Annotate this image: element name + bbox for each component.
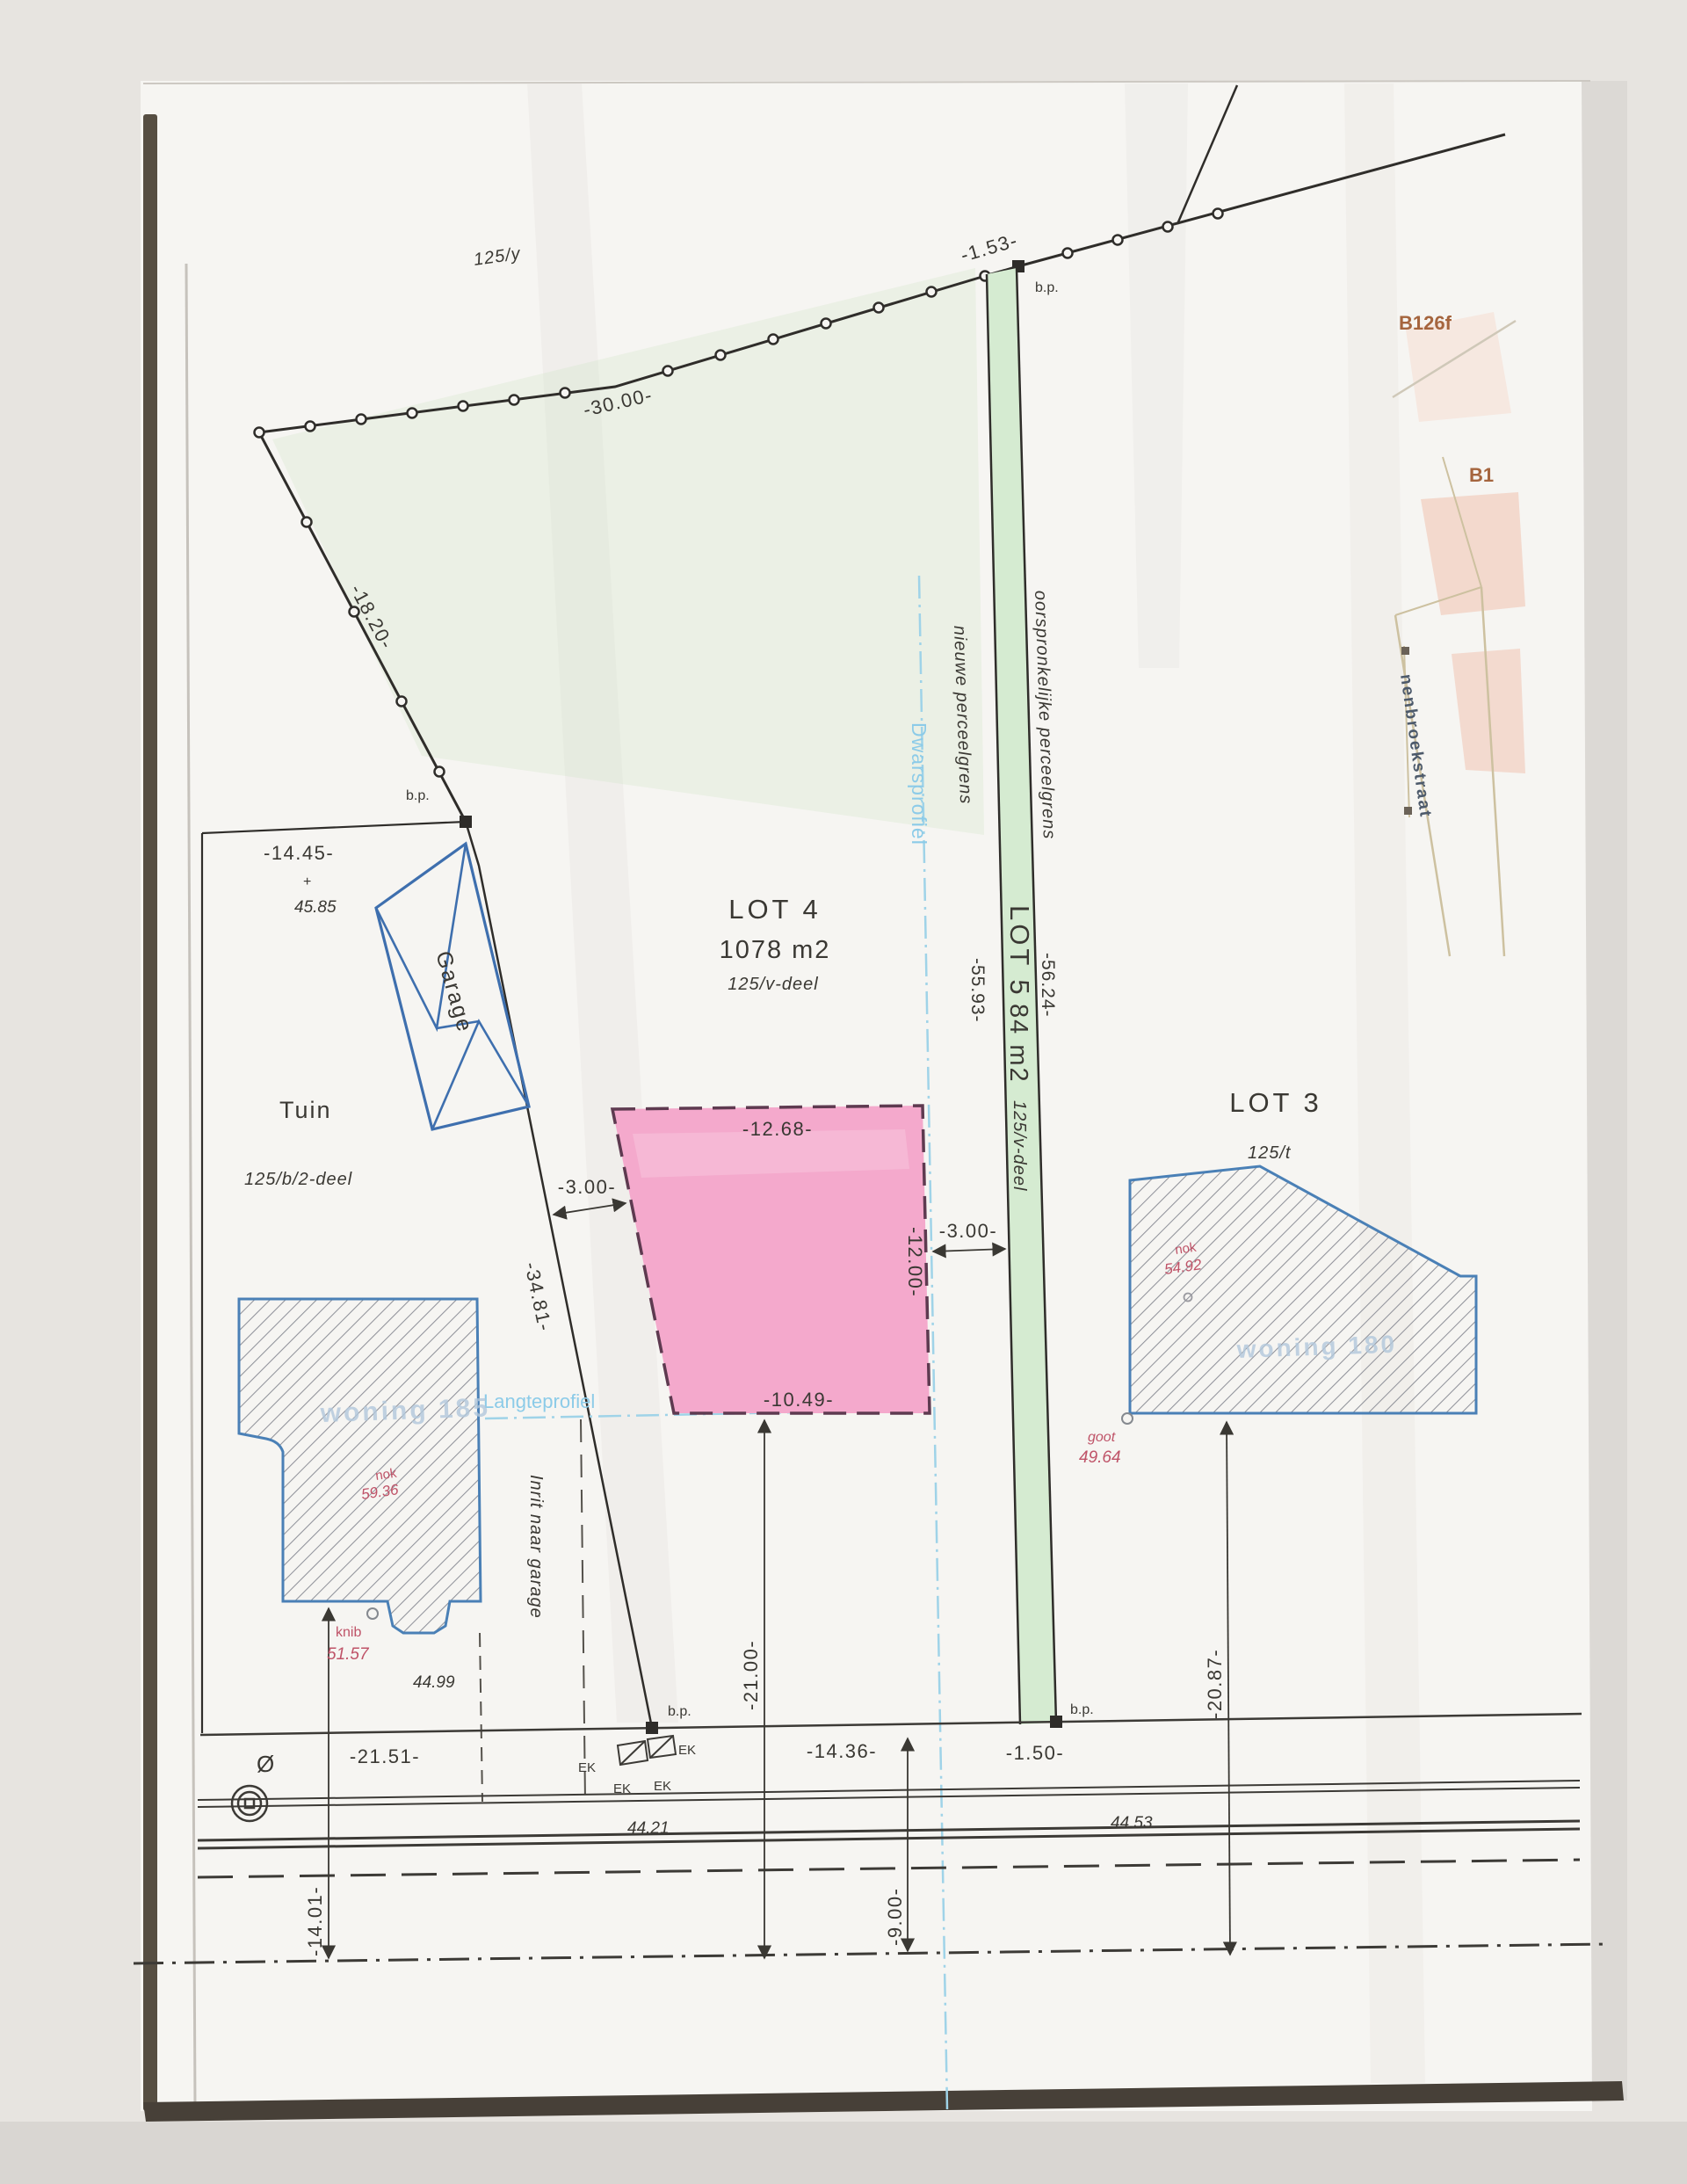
dim-5593-label: -55.93- [967, 958, 988, 1023]
plus-mark: + [303, 874, 311, 889]
plan-svg: nenbroekstraat B126f B1 125/y -30.00- -1… [0, 0, 1687, 2184]
dim-150-label: -1.50- [1006, 1742, 1064, 1764]
bp-square-street-right [1050, 1716, 1062, 1728]
ek-label-3: EK [613, 1781, 631, 1796]
lot4-parcel-label: 125/v-deel [728, 975, 818, 994]
dim-900-label: -9.00- [884, 1888, 906, 1946]
dim-1401-label: -14.01- [304, 1886, 326, 1956]
goot-value: 49.64 [1079, 1448, 1121, 1467]
diameter-symbol: Ø [257, 1751, 274, 1777]
goot-label: goot [1088, 1430, 1116, 1445]
bp-square-garage [460, 816, 472, 828]
dim-1445-label: -14.45- [264, 842, 334, 864]
street-marker-2 [1404, 807, 1412, 815]
photo-bottom-margin [0, 2122, 1687, 2184]
ek-label-2: EK [678, 1743, 696, 1758]
bp-garage-label: b.p. [406, 788, 430, 803]
lot4-labels-group: LOT 4 1078 m2 125/v-deel [720, 894, 831, 994]
knib-label: knib [336, 1625, 361, 1640]
woning-right-faint-label: woning 180 [1235, 1331, 1397, 1363]
street-marker-1 [1401, 647, 1409, 655]
knib-value: 51.57 [327, 1645, 370, 1664]
dim-1049-label: -10.49- [764, 1389, 834, 1411]
inrit-label: Inrit naar garage [526, 1475, 546, 1619]
bp-street-right-label: b.p. [1070, 1702, 1094, 1717]
dim-2151-label: -21.51- [350, 1745, 420, 1767]
bp-top-label: b.p. [1035, 280, 1059, 295]
woning-left-faint-label: woning 185 [319, 1393, 490, 1428]
parcel-b126f-label: B126f [1399, 312, 1452, 334]
lot4-area-label: 1078 m2 [720, 936, 831, 964]
photo-left-edge [143, 114, 157, 2111]
dim-5624-label: -56.24- [1038, 953, 1058, 1018]
bp-square-street-left [646, 1722, 658, 1734]
dim-2100-label: -21.00- [740, 1640, 762, 1710]
parcel-b1-label: B1 [1469, 464, 1494, 486]
lot5-name-label: LOT 5 [1004, 905, 1035, 998]
ek-label-4: EK [654, 1779, 671, 1794]
dwarsprofiel-label: Dwarsprofiel [908, 722, 930, 845]
lot5-area-label: 84 m2 [1004, 1004, 1032, 1084]
bp-street-left-label: b.p. [668, 1704, 691, 1719]
dim-1268-label: -12.68- [742, 1118, 813, 1140]
lot3-name-label: LOT 3 [1229, 1087, 1322, 1118]
ek-label-1: EK [578, 1760, 596, 1775]
dim-300-left-label: -3.00- [558, 1176, 616, 1198]
dim-2087-label: -20.87- [1204, 1649, 1226, 1719]
level-4421-label: 44.21 [627, 1819, 670, 1838]
lot5-parcel-label: 125/v-deel [1010, 1100, 1029, 1191]
scanned-cadastral-plan: nenbroekstraat B126f B1 125/y -30.00- -1… [0, 0, 1687, 2184]
level-4453-label: 44.53 [1111, 1814, 1153, 1832]
nok-right-label: nok [1174, 1240, 1198, 1258]
lot3-parcel-label: 125/t [1248, 1143, 1292, 1163]
level-4585-label: 45.85 [294, 898, 337, 917]
langteprofiel-label: Langteprofiel [483, 1390, 595, 1412]
dim-300-right-label: -3.00- [939, 1220, 997, 1242]
dim-1200-label: -12.00- [904, 1227, 926, 1297]
tuin-label: Tuin [279, 1097, 332, 1123]
tuin-parcel-label: 125/b/2-deel [244, 1170, 352, 1189]
lot4-name-label: LOT 4 [728, 894, 822, 925]
dim-1436-label: -14.36- [807, 1740, 877, 1762]
level-4499-label: 44.99 [413, 1673, 455, 1692]
